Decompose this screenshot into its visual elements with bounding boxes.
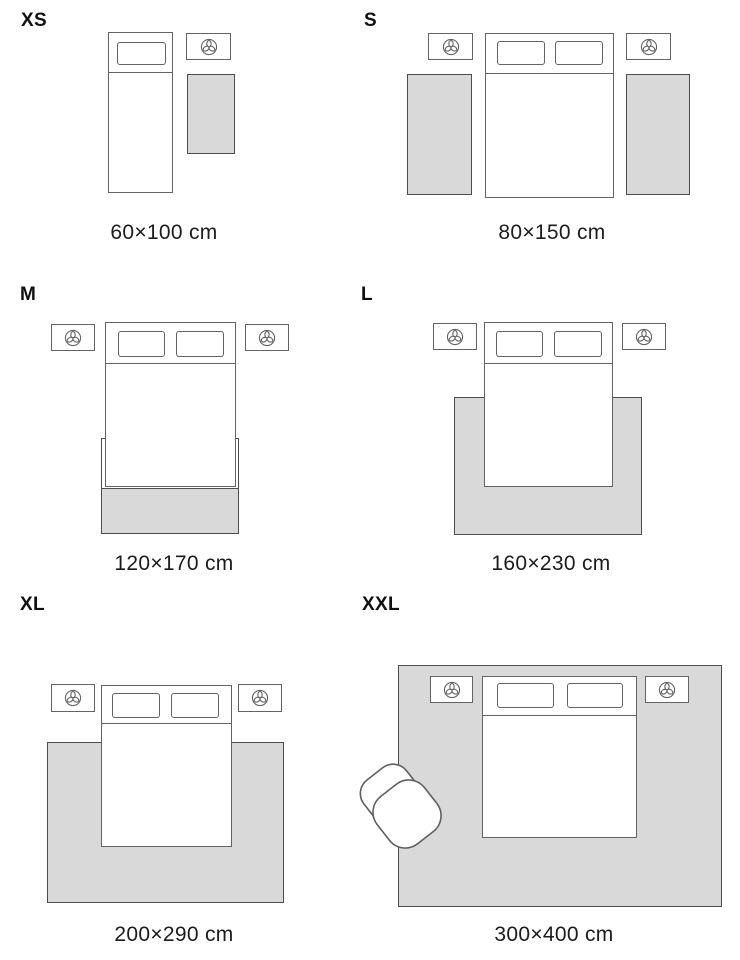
plant-icon	[633, 326, 655, 348]
single-bed	[108, 32, 173, 193]
pillow-right	[171, 693, 219, 718]
bed-headboard	[485, 323, 612, 364]
plant-icon	[198, 36, 220, 58]
plant-icon	[440, 36, 462, 58]
dimension-label-l: 160×230 cm	[471, 552, 631, 576]
dimension-label-m: 120×170 cm	[94, 552, 254, 576]
size-label-xs: XS	[21, 10, 47, 32]
size-label-xxl: XXL	[362, 594, 400, 616]
bed-headboard	[102, 686, 231, 724]
plant-icon	[444, 326, 466, 348]
dimension-label-xxl: 300×400 cm	[474, 923, 634, 947]
nightstand-right	[645, 676, 689, 703]
pillow-left	[497, 41, 545, 65]
plant-icon	[256, 327, 278, 349]
armchair	[356, 761, 446, 853]
nightstand-left	[428, 33, 473, 60]
bed-headboard	[109, 33, 172, 73]
pillow-left	[112, 693, 160, 718]
pillow-left	[118, 331, 165, 357]
nightstand-left	[433, 323, 477, 350]
pillow-right	[567, 683, 623, 708]
rug-runner-right	[626, 74, 690, 195]
pillow-right	[555, 41, 603, 65]
plant-icon	[656, 679, 678, 701]
nightstand-right	[622, 323, 666, 350]
pillow-left	[496, 331, 543, 357]
plant-icon	[62, 327, 84, 349]
size-label-xl: XL	[20, 594, 45, 616]
dimension-label-xs: 60×100 cm	[84, 221, 244, 245]
pillow-right	[554, 331, 602, 357]
rug-size-guide: XS 60×100 cm S 80×150 cm M	[0, 0, 740, 960]
pillow	[117, 42, 166, 65]
double-bed	[482, 676, 637, 838]
size-label-m: M	[20, 284, 36, 306]
size-label-s: S	[364, 10, 377, 32]
bed-headboard	[106, 323, 235, 364]
nightstand-left	[51, 684, 95, 712]
nightstand-right	[245, 324, 289, 351]
double-bed	[485, 33, 614, 198]
nightstand-left	[430, 676, 473, 703]
nightstand-left	[51, 324, 95, 351]
bed-headboard	[483, 677, 636, 716]
size-label-l: L	[361, 284, 373, 306]
pillow-right	[176, 331, 224, 357]
plant-icon	[638, 36, 660, 58]
plant-icon	[441, 679, 463, 701]
nightstand	[186, 33, 231, 60]
rug-runner-left	[407, 74, 472, 195]
double-bed	[105, 322, 236, 487]
nightstand-right	[626, 33, 671, 60]
double-bed	[484, 322, 613, 487]
bed-headboard	[486, 34, 613, 74]
dimension-label-s: 80×150 cm	[472, 221, 632, 245]
rug	[187, 74, 235, 154]
nightstand-right	[238, 684, 282, 712]
double-bed	[101, 685, 232, 847]
plant-icon	[249, 687, 271, 709]
dimension-label-xl: 200×290 cm	[94, 923, 254, 947]
rug-exposed-area	[102, 488, 238, 533]
pillow-left	[497, 683, 554, 708]
plant-icon	[62, 687, 84, 709]
